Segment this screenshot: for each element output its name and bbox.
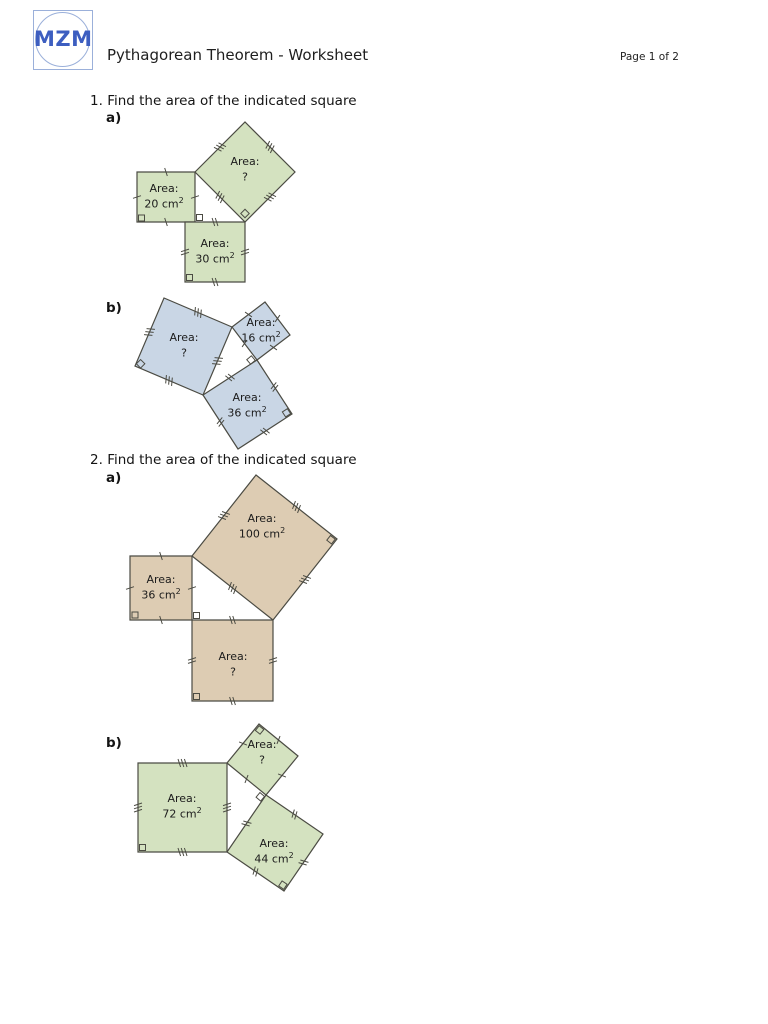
area-label-unknown: Area: ?: [230, 155, 259, 185]
right-angle-marker: [197, 215, 203, 221]
question-2-text: Find the area of the indicated square: [107, 452, 356, 468]
area-label-30cm2: Area: 30 cm2: [195, 237, 234, 267]
part-label-1b: b): [106, 300, 122, 316]
area-label-unknown: Area: ?: [247, 738, 276, 768]
fig2a-hypotenuse-square-100cm2: [192, 475, 337, 620]
logo-text: MZM: [34, 27, 92, 51]
area-label-72cm2: Area: 72 cm2: [162, 792, 201, 822]
area-label-36cm2: Area: 36 cm2: [141, 573, 180, 603]
area-label-44cm2: Area: 44 cm2: [254, 837, 293, 867]
part-label-1a: a): [106, 110, 121, 126]
question-2-number: 2.: [90, 452, 103, 468]
figure-2a: Area: 100 cm2 Area: 36 cm2 Area: ?: [126, 470, 342, 706]
figure-2b: Area: 72 cm2 Area: ? Area: 44 cm2: [134, 717, 328, 895]
area-label-unknown: Area: ?: [218, 650, 247, 680]
area-label-16cm2: Area: 16 cm2: [241, 316, 280, 346]
page-title: Pythagorean Theorem - Worksheet: [107, 46, 368, 64]
part-label-2a: a): [106, 470, 121, 486]
area-label-100cm2: Area: 100 cm2: [239, 512, 285, 542]
mzm-logo: MZM: [33, 10, 93, 70]
figure-1a: Area: ? Area: 20 cm2 Area: 30 cm2: [130, 105, 310, 290]
figure-1b: Area: ? Area: 16 cm2 Area: 36 cm2: [125, 292, 305, 457]
worksheet-page: MZM Pythagorean Theorem - Worksheet Page…: [0, 0, 768, 1024]
page-number: Page 1 of 2: [620, 51, 679, 63]
area-label-unknown: Area: ?: [169, 331, 198, 361]
area-label-36cm2: Area: 36 cm2: [227, 391, 266, 421]
area-label-20cm2: Area: 20 cm2: [144, 182, 183, 212]
part-label-2b: b): [106, 735, 122, 751]
right-angle-marker: [194, 613, 200, 619]
question-1-number: 1.: [90, 93, 103, 109]
question-2-prompt: 2. Find the area of the indicated square: [90, 452, 357, 468]
